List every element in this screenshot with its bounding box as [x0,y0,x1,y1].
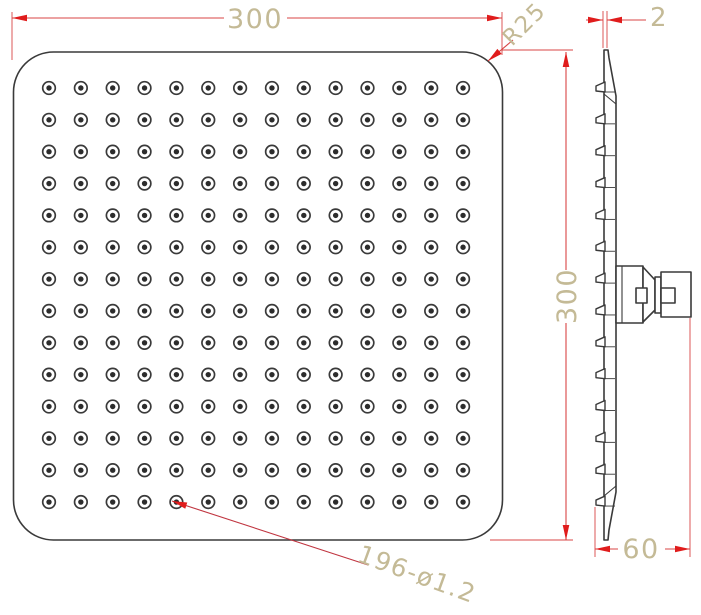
nozzle-hole [365,85,370,90]
nozzle-hole [460,117,465,122]
nozzle-hole [460,340,465,345]
nozzle-hole [333,276,338,281]
nozzle-hole [174,245,179,250]
nozzle-hole [269,340,274,345]
nozzle-hole [301,149,306,154]
side-nozzle-tooth [596,337,605,347]
nozzle-hole [142,181,147,186]
side-nozzle-tooth [596,146,605,156]
nozzle-hole [301,213,306,218]
nozzle-hole [142,213,147,218]
nozzle-hole [78,276,83,281]
nozzle-hole [206,117,211,122]
side-nozzle-tooth [596,401,605,411]
dim-corner-radius-label: R25 [498,0,552,51]
nozzle-hole [301,117,306,122]
nozzle-hole [429,213,434,218]
nozzle-hole [142,245,147,250]
nozzle-hole [269,181,274,186]
nozzle-hole [46,181,51,186]
nozzle-hole [46,468,51,473]
nozzle-hole [237,245,242,250]
nozzle-hole [110,499,115,504]
nozzle-hole [269,499,274,504]
nozzle-hole [397,181,402,186]
side-nozzle-tooth [596,178,605,188]
nozzle-hole [397,308,402,313]
nozzle-hole [206,181,211,186]
dim-thickness-label: 2 [650,3,668,33]
nozzle-hole [301,85,306,90]
nozzle-hole [206,308,211,313]
nozzle-hole [206,276,211,281]
nozzle-hole [46,308,51,313]
nozzle-hole [269,213,274,218]
nozzle-hole [174,213,179,218]
nozzle-hole [460,181,465,186]
nozzle-hole [301,276,306,281]
nozzle-hole [333,340,338,345]
nozzle-hole [301,372,306,377]
nozzle-hole [46,499,51,504]
nozzle-hole [46,436,51,441]
nozzle-hole [237,308,242,313]
nozzle-hole [269,149,274,154]
nozzle-hole [46,213,51,218]
nozzle-hole [365,372,370,377]
nozzle-hole [301,499,306,504]
nozzle-hole [237,436,242,441]
nozzle-hole [429,468,434,473]
nozzle-hole [365,149,370,154]
nozzle-hole [460,276,465,281]
nozzle-hole [174,149,179,154]
nozzle-hole [110,181,115,186]
nozzle-hole [110,85,115,90]
nozzle-hole [46,149,51,154]
nozzle-hole [269,245,274,250]
nozzle-hole [269,372,274,377]
nozzle-hole [429,149,434,154]
nozzle-hole [301,404,306,409]
nozzle-hole [46,85,51,90]
nozzle-hole [460,308,465,313]
nozzle-hole [142,468,147,473]
nozzle-hole [429,85,434,90]
dim-height: 300 [490,50,583,540]
nozzle-hole [78,149,83,154]
side-nozzle-tooth [596,432,605,442]
nozzle-hole [110,245,115,250]
nozzle-hole [110,117,115,122]
nozzle-hole [301,181,306,186]
nozzle-hole [333,404,338,409]
nozzle-hole [174,372,179,377]
nozzle-hole [429,404,434,409]
nozzle-hole [174,340,179,345]
nozzle-hole [269,468,274,473]
nozzle-hole [269,117,274,122]
nozzle-hole [397,372,402,377]
nozzle-hole [78,468,83,473]
nozzle-hole [237,117,242,122]
nozzle-hole [269,276,274,281]
nozzle-hole [142,499,147,504]
nozzle-hole [46,245,51,250]
nozzle-hole [397,436,402,441]
dim-width-label: 300 [227,4,283,35]
nozzle-hole [206,499,211,504]
nozzle-hole [397,213,402,218]
nozzle-hole [365,436,370,441]
nozzle-hole [365,276,370,281]
nozzle-hole [237,213,242,218]
nozzle-hole [397,499,402,504]
nozzle-hole [365,245,370,250]
dim-corner-radius: R25 [486,0,552,64]
nozzle-hole [142,308,147,313]
nozzle-hole [110,340,115,345]
nozzle-hole [333,181,338,186]
side-nozzle-tooth [596,496,605,506]
nozzle-hole [110,404,115,409]
nozzle-hole [460,404,465,409]
nozzle-hole [174,468,179,473]
nozzle-hole [237,468,242,473]
connector-neck [655,277,661,313]
nozzle-hole [460,499,465,504]
side-nozzle-tooth [596,82,605,92]
nozzle-hole [206,468,211,473]
nozzle-hole [46,340,51,345]
arrow-right [487,15,502,22]
nozzle-hole [429,245,434,250]
dim-height-label: 300 [552,268,583,324]
side-nozzle-tooth [596,369,605,379]
nozzle-hole [206,213,211,218]
nozzle-hole [142,85,147,90]
technical-drawing-canvas: 300 300 R25 2 [0,0,701,615]
nozzle-hole [365,117,370,122]
nozzle-hole [269,436,274,441]
nozzle-hole [78,308,83,313]
nozzle-hole [206,372,211,377]
nozzle-hole [333,213,338,218]
nozzle-hole [78,499,83,504]
nozzle-hole [206,340,211,345]
nozzle-hole [110,372,115,377]
nozzle-hole [46,372,51,377]
nozzle-hole [397,117,402,122]
nozzle-hole [365,340,370,345]
nozzle-hole [301,340,306,345]
nozzle-hole [206,436,211,441]
side-view [596,50,691,540]
nozzle-hole [365,181,370,186]
nozzle-hole [460,468,465,473]
nozzle-hole [206,149,211,154]
nozzle-hole [397,340,402,345]
nozzle-hole [110,213,115,218]
nozzle-hole [397,404,402,409]
nozzle-hole [78,245,83,250]
nozzle-hole [174,117,179,122]
nozzle-hole [397,149,402,154]
nozzle-hole [142,149,147,154]
nozzle-hole [78,117,83,122]
nozzle-hole [110,308,115,313]
nozzle-hole [333,117,338,122]
nozzle-hole [301,468,306,473]
nozzle-hole [429,499,434,504]
nozzle-hole [78,181,83,186]
nozzle-hole [429,181,434,186]
nozzle-hole [142,117,147,122]
side-nozzle-tooth [596,114,605,124]
nozzle-hole [46,404,51,409]
nozzle-hole [365,213,370,218]
dim-thickness: 2 [586,3,668,48]
nozzle-hole [78,85,83,90]
nozzle-hole [429,117,434,122]
nozzle-hole [301,308,306,313]
nozzle-hole [110,468,115,473]
nozzle-hole [301,245,306,250]
front-view [14,52,503,540]
nozzle-hole [142,276,147,281]
side-nozzle-tooth [596,305,605,315]
nozzle-hole [174,436,179,441]
side-nozzle-tooth [596,273,605,283]
nozzle-hole [46,117,51,122]
nozzle-hole [269,85,274,90]
nozzle-hole [365,499,370,504]
nozzle-hole [333,149,338,154]
nozzle-hole [174,404,179,409]
side-nozzle-tooth [596,464,605,474]
nozzle-hole [460,436,465,441]
nozzle-hole [397,85,402,90]
nozzle-hole [78,340,83,345]
nozzle-hole [365,308,370,313]
nozzle-hole [237,149,242,154]
arrow-up [563,52,570,67]
nozzle-hole [174,276,179,281]
nozzle-hole [110,436,115,441]
nozzle-hole [78,404,83,409]
nozzle-hole [174,85,179,90]
nozzle-hole [333,85,338,90]
nozzle-hole [397,276,402,281]
nozzle-hole [397,245,402,250]
nozzle-hole [460,213,465,218]
side-nozzle-tooth [596,209,605,219]
nozzle-hole [237,85,242,90]
connector-tab [636,288,647,303]
arrow-down [563,525,570,540]
nozzle-hole [429,308,434,313]
arrow-right [588,17,603,24]
nozzle-hole [333,436,338,441]
nozzle-grid [43,82,470,509]
nozzle-hole [237,499,242,504]
nozzle-hole [365,404,370,409]
nozzle-hole [333,245,338,250]
nozzle-hole [237,404,242,409]
nozzle-hole [365,468,370,473]
nozzle-hole [460,372,465,377]
connector-assembly [616,266,691,323]
nozzle-hole [460,245,465,250]
nozzle-hole [78,436,83,441]
nozzle-hole [333,499,338,504]
nozzle-hole [78,372,83,377]
arrow-left [595,546,610,553]
nozzle-hole [110,276,115,281]
nozzle-hole [206,404,211,409]
nozzle-hole [174,308,179,313]
nozzle-hole [429,340,434,345]
nozzle-hole [333,372,338,377]
nozzle-hole [174,181,179,186]
nozzle-hole [269,308,274,313]
nozzle-hole [237,181,242,186]
nozzle-hole [142,372,147,377]
nozzle-hole [237,276,242,281]
nozzle-hole [429,276,434,281]
connector-thread-detail [661,288,675,303]
nozzle-hole [429,436,434,441]
leader-line [172,501,368,565]
nozzle-hole [206,85,211,90]
nozzle-hole [237,372,242,377]
nozzle-hole [460,149,465,154]
drawing-svg: 300 300 R25 2 [0,0,701,615]
nozzle-hole [301,436,306,441]
nozzle-hole [206,245,211,250]
nozzle-hole [333,468,338,473]
nozzle-hole [269,404,274,409]
nozzle-hole [333,308,338,313]
nozzle-hole [46,276,51,281]
dim-nozzle-spec: 196-ø1.2 [171,498,480,609]
nozzle-hole [110,149,115,154]
arrow-left [607,17,622,24]
nozzle-hole [142,340,147,345]
nozzle-hole [142,404,147,409]
nozzle-hole [460,85,465,90]
nozzle-hole [429,372,434,377]
nozzle-hole [397,468,402,473]
arrow-left [12,15,27,22]
arrow-right [675,546,690,553]
nozzle-hole [78,213,83,218]
nozzle-hole [142,436,147,441]
dim-nozzle-spec-label: 196-ø1.2 [354,539,480,609]
side-nozzle-tooth [596,241,605,251]
nozzle-hole [237,340,242,345]
dim-depth-label: 60 [622,534,659,565]
